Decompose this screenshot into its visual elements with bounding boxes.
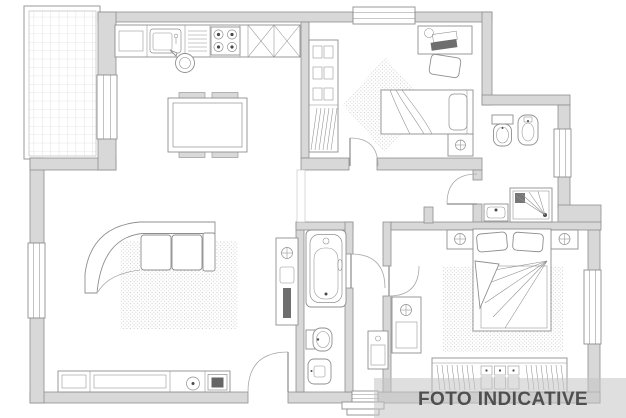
master-cabinet: [392, 297, 421, 353]
hob-icon: [211, 27, 240, 55]
kitchen-counter: [115, 25, 300, 57]
window-icon-master: [584, 270, 601, 344]
utility-column: [276, 238, 298, 325]
bathtub-icon: [306, 230, 346, 307]
door-master-bedroom: [389, 266, 419, 296]
wardrobe-small-bedroom: [309, 40, 338, 152]
double-bed: [473, 229, 551, 331]
toilet-icon-main: [306, 328, 332, 351]
shower-icon: [510, 188, 552, 222]
sideboard: [58, 371, 230, 392]
toilet-icon-ensuite: [492, 115, 513, 146]
balcony: [24, 6, 100, 159]
balcony-tiles: [29, 11, 96, 156]
window-icon-living: [28, 243, 45, 318]
entrance-door: [248, 352, 288, 392]
watermark-text: FOTO INDICATIVE: [418, 389, 588, 410]
bidet-icon-main: [308, 359, 331, 384]
watermark: FOTO INDICATIVE: [374, 378, 626, 418]
dining-table: [168, 93, 247, 158]
single-bed: [381, 90, 473, 134]
washbasin-icon-ensuite: [484, 204, 508, 221]
desk: [418, 26, 472, 54]
opening-threshold: [297, 170, 305, 222]
corridor-cabinet: [368, 331, 388, 369]
radiator-valve-icon: [282, 248, 293, 259]
desk-chair: [429, 54, 462, 78]
window-icon-bathroom: [554, 129, 571, 177]
window-icon-top-bedroom: [353, 7, 415, 24]
door-ensuite-bathroom: [447, 174, 477, 204]
floorplan-image: FOTO INDICATIVE: [0, 0, 626, 418]
bidet-icon-ensuite: [518, 115, 538, 145]
nightstand-small-bedroom: [448, 134, 473, 156]
floorplan-svg: FOTO INDICATIVE: [0, 0, 626, 418]
door-small-bedroom: [350, 138, 378, 166]
door-main-bathroom: [351, 254, 385, 288]
nightstand-right: [551, 230, 578, 249]
nightstand-left: [447, 230, 473, 249]
window-icon-balcony-door: [97, 75, 117, 139]
